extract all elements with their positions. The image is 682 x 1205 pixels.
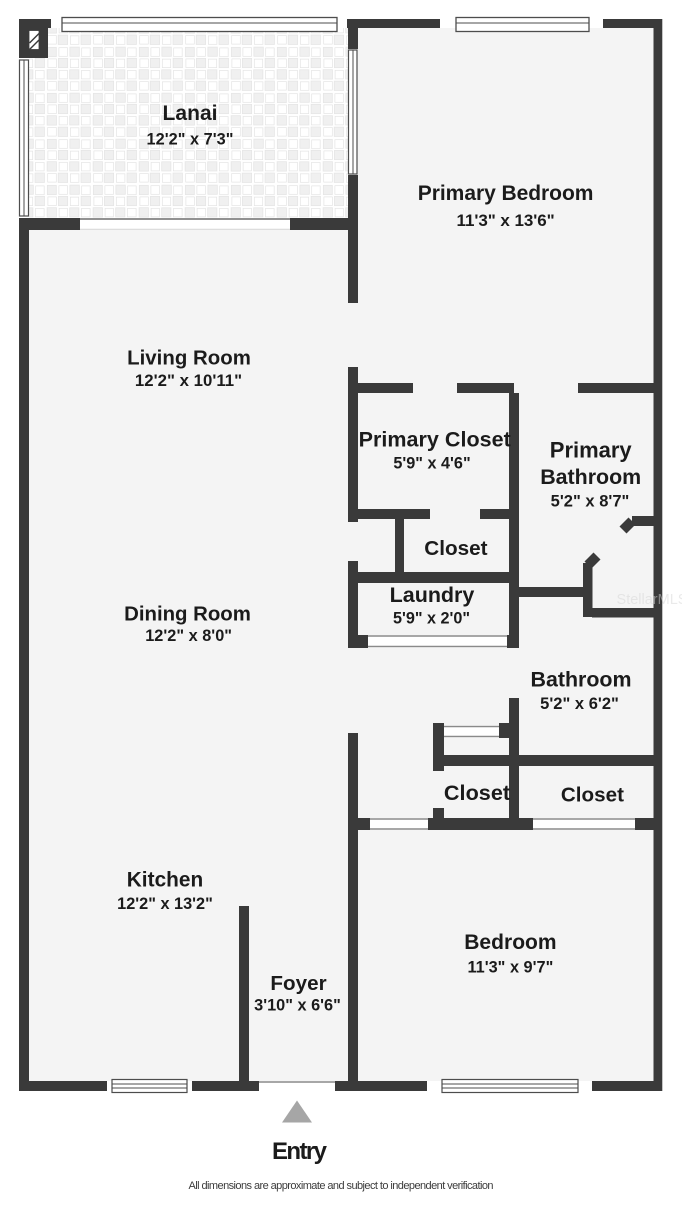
svg-text:Kitchen: Kitchen	[127, 869, 204, 892]
svg-text:Primary Closet: Primary Closet	[359, 428, 511, 452]
svg-text:Foyer: Foyer	[270, 972, 326, 995]
svg-text:Bedroom: Bedroom	[464, 931, 556, 954]
svg-text:12'2" x 10'11": 12'2" x 10'11"	[135, 371, 242, 390]
svg-text:Dining Room: Dining Room	[124, 604, 251, 626]
svg-text:12'2" x 7'3": 12'2" x 7'3"	[147, 131, 234, 149]
svg-text:12'2" x 8'0": 12'2" x 8'0"	[145, 627, 232, 645]
svg-text:All dimensions are approximate: All dimensions are approximate and subje…	[189, 1180, 494, 1192]
svg-text:Lanai: Lanai	[163, 102, 218, 125]
svg-text:StellarMLS: StellarMLS	[617, 592, 682, 608]
svg-text:12'2" x 13'2": 12'2" x 13'2"	[117, 895, 213, 913]
svg-text:Living Room: Living Room	[127, 348, 251, 370]
svg-text:Closet: Closet	[444, 780, 510, 805]
svg-text:Primary Bedroom: Primary Bedroom	[418, 182, 594, 205]
svg-text:Closet: Closet	[424, 537, 487, 560]
svg-text:11'3" x 9'7": 11'3" x 9'7"	[468, 959, 554, 977]
svg-text:5'2" x 8'7": 5'2" x 8'7"	[551, 493, 630, 511]
svg-text:Laundry: Laundry	[390, 583, 475, 607]
svg-text:Bathroom: Bathroom	[531, 668, 632, 692]
svg-text:Primary: Primary	[550, 438, 633, 463]
svg-text:Closet: Closet	[561, 784, 624, 807]
svg-text:5'9" x 2'0": 5'9" x 2'0"	[393, 610, 470, 628]
svg-text:5'9" x 4'6": 5'9" x 4'6"	[393, 455, 470, 473]
svg-text:11'3" x 13'6": 11'3" x 13'6"	[457, 211, 555, 230]
svg-text:3'10" x 6'6": 3'10" x 6'6"	[254, 997, 341, 1015]
svg-text:5'2" x 6'2": 5'2" x 6'2"	[540, 695, 619, 713]
svg-text:Entry: Entry	[272, 1138, 328, 1165]
svg-text:Bathroom: Bathroom	[540, 465, 641, 489]
